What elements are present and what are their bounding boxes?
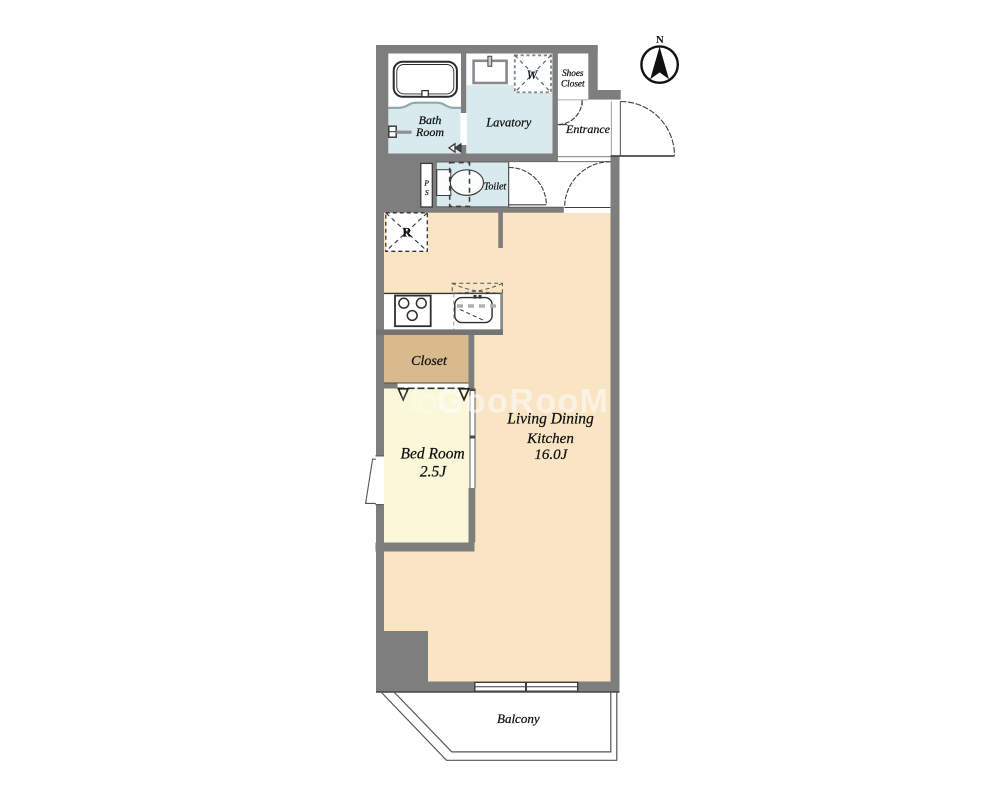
svg-text:Balcony: Balcony	[497, 711, 540, 726]
svg-text:Lavatory: Lavatory	[485, 116, 532, 130]
svg-text:S: S	[425, 188, 429, 197]
svg-text:R: R	[402, 226, 412, 240]
svg-text:Room: Room	[415, 125, 444, 139]
svg-text:GooRooM: GooRooM	[437, 383, 608, 421]
svg-text:Kitchen: Kitchen	[526, 431, 574, 447]
svg-text:Closet: Closet	[561, 78, 585, 88]
svg-text:Toilet: Toilet	[484, 182, 507, 193]
svg-text:Closet: Closet	[411, 354, 448, 369]
svg-text:N: N	[656, 34, 664, 46]
svg-text:W: W	[527, 68, 539, 82]
svg-text:Entrance: Entrance	[565, 122, 611, 136]
svg-text:Bed Room: Bed Room	[401, 446, 465, 463]
svg-text:16.0J: 16.0J	[534, 447, 568, 463]
svg-text:2.5J: 2.5J	[420, 463, 447, 480]
svg-text:P: P	[423, 179, 429, 188]
svg-text:Shoes: Shoes	[562, 68, 584, 78]
